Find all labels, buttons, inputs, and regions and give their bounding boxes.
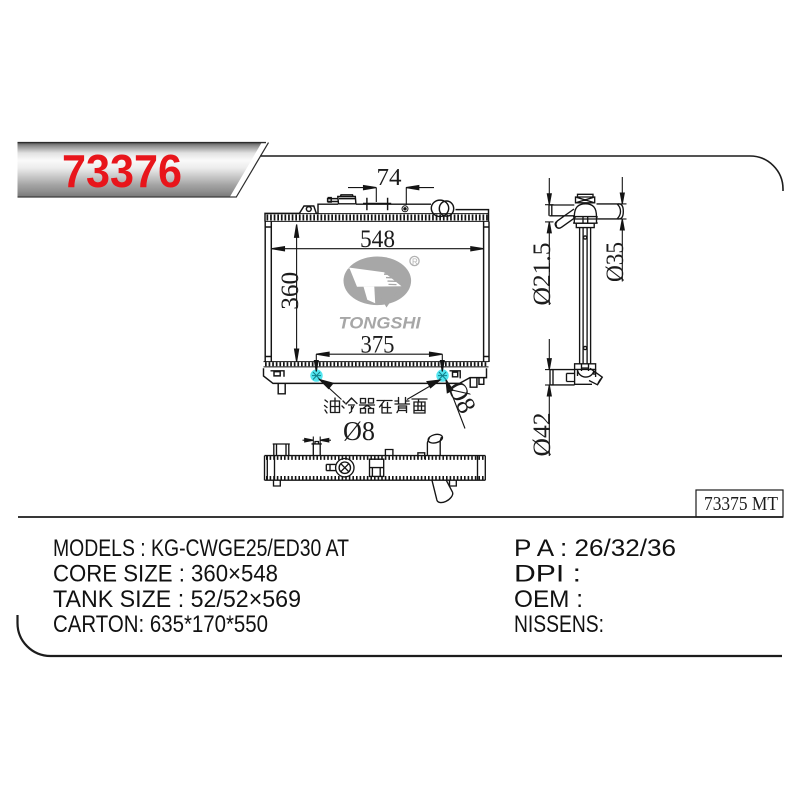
svg-text:548: 548: [360, 226, 395, 253]
svg-text:Ø42: Ø42: [529, 413, 556, 457]
svg-text:Ø35: Ø35: [602, 242, 629, 282]
svg-text:73376: 73376: [62, 145, 182, 197]
svg-text:TONGSHI: TONGSHI: [339, 315, 421, 333]
svg-text:73375 MT: 73375 MT: [704, 494, 778, 515]
svg-text:360: 360: [277, 272, 304, 310]
svg-text:TANK SIZE : 52/52×569: TANK SIZE : 52/52×569: [53, 586, 301, 613]
svg-text:74: 74: [377, 165, 402, 191]
svg-text:DPI :: DPI :: [514, 561, 581, 588]
svg-text:R: R: [412, 258, 418, 267]
svg-text:P A : 26/32/36: P A : 26/32/36: [514, 535, 676, 562]
svg-text:Ø21.5: Ø21.5: [529, 243, 556, 306]
svg-text:CARTON: 635*170*550: CARTON: 635*170*550: [53, 611, 268, 638]
svg-text:CORE SIZE : 360×548: CORE SIZE : 360×548: [53, 561, 278, 588]
svg-text:Ø8: Ø8: [343, 416, 375, 446]
svg-text:OEM :: OEM :: [514, 586, 583, 613]
svg-text:375: 375: [361, 331, 395, 358]
svg-text:MODELS : KG-CWGE25/ED30 AT: MODELS : KG-CWGE25/ED30 AT: [53, 535, 349, 562]
svg-text:NISSENS:: NISSENS:: [514, 611, 604, 638]
